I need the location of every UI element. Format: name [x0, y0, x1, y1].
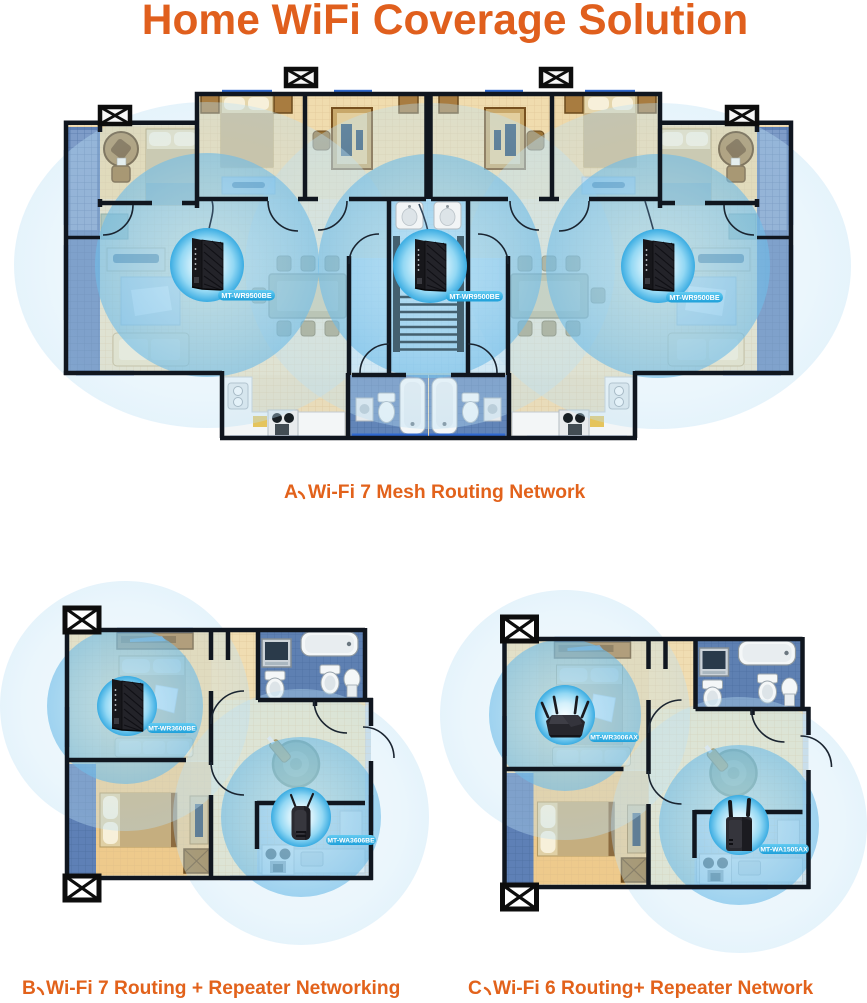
- svg-text:Wi-Fi 7 Routing + Repeater Net: Wi-Fi 7 Routing + Repeater Networking: [46, 978, 400, 999]
- svg-text:MT-WR3600BE: MT-WR3600BE: [148, 726, 196, 733]
- svg-text:MT-WA3606BE: MT-WA3606BE: [327, 838, 375, 845]
- svg-text:Wi-Fi 6 Routing+ Repeater Netw: Wi-Fi 6 Routing+ Repeater Network: [493, 978, 814, 999]
- svg-text:MT-WR3006AX: MT-WR3006AX: [590, 735, 638, 742]
- svg-text:Home WiFi Coverage Solution: Home WiFi Coverage Solution: [142, 0, 748, 44]
- svg-text:A: A: [284, 482, 298, 503]
- svg-text:B: B: [22, 978, 36, 999]
- svg-text:MT-WA1505AX: MT-WA1505AX: [760, 847, 808, 854]
- svg-text:Wi-Fi 7 Mesh Routing Network: Wi-Fi 7 Mesh Routing Network: [308, 482, 586, 503]
- svg-text:C: C: [468, 978, 482, 999]
